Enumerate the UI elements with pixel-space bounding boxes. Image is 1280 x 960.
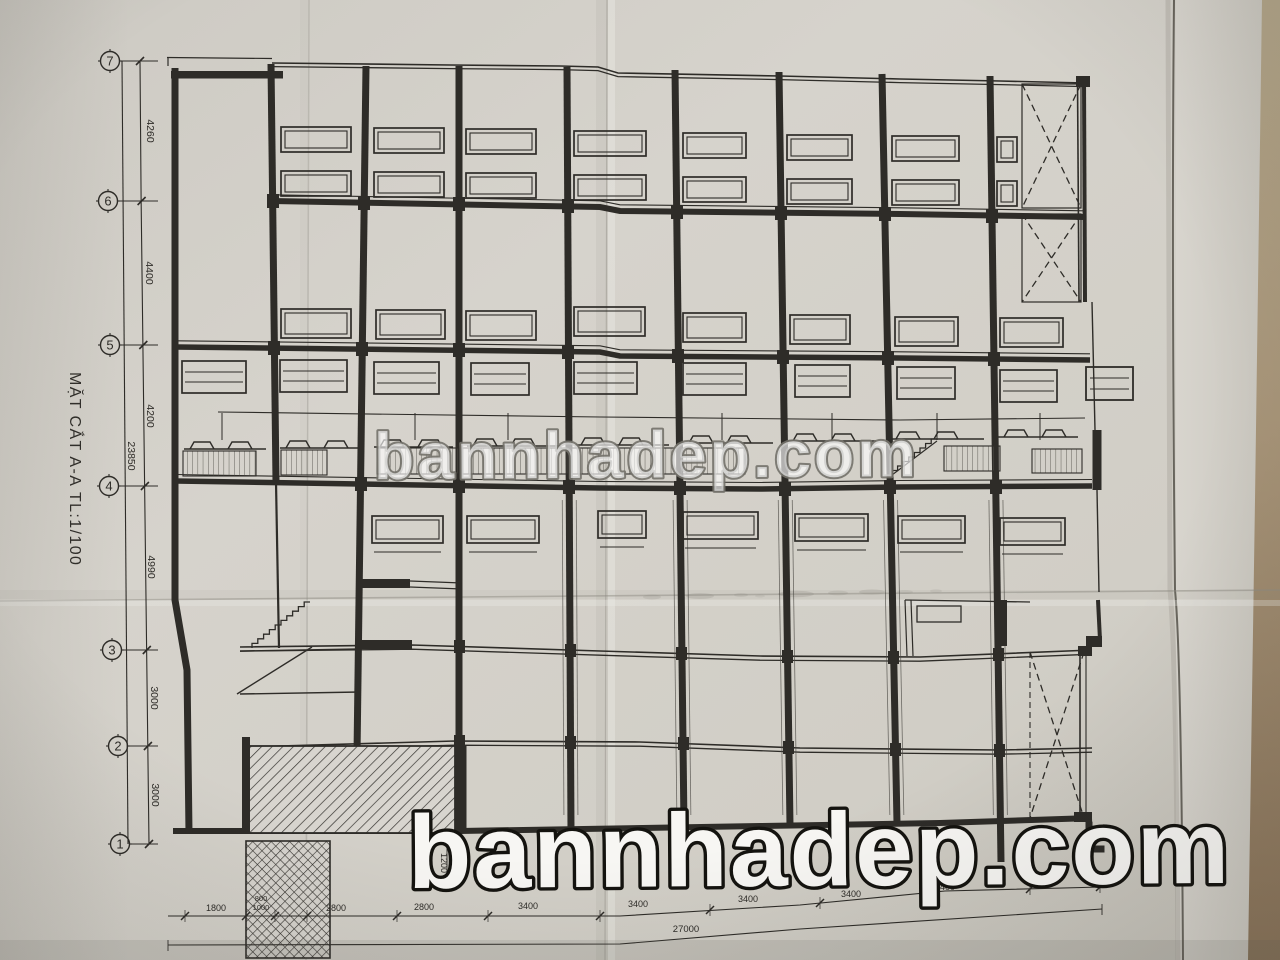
svg-text:1000: 1000 [253, 903, 270, 912]
svg-text:2800: 2800 [326, 903, 346, 913]
svg-text:4400: 4400 [143, 261, 155, 285]
svg-text:3000: 3000 [148, 686, 160, 710]
svg-text:bannhadep.com: bannhadep.com [407, 790, 1231, 911]
svg-text:800: 800 [255, 894, 268, 903]
svg-text:4200: 4200 [144, 404, 156, 428]
svg-text:bannhadep.com: bannhadep.com [374, 416, 919, 493]
svg-text:3000: 3000 [149, 783, 161, 807]
svg-text:4990: 4990 [145, 555, 157, 579]
svg-text:27000: 27000 [673, 924, 699, 935]
svg-text:4260: 4260 [144, 119, 156, 143]
svg-text:1800: 1800 [206, 903, 226, 913]
